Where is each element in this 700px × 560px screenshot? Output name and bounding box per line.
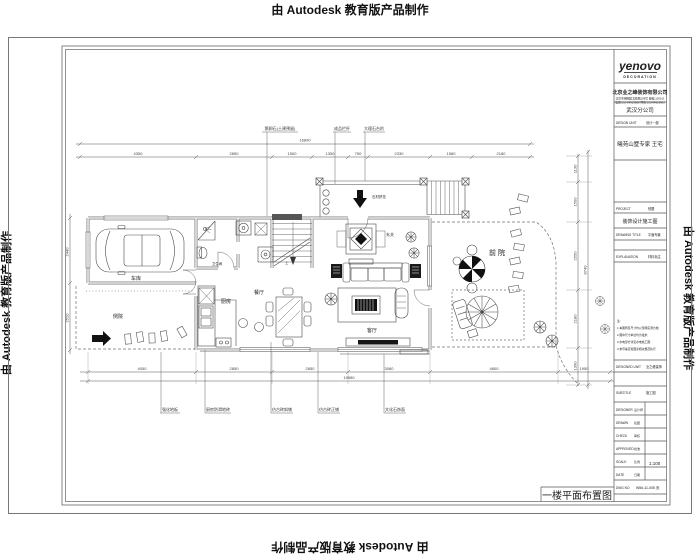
sign-value: 绘图 — [634, 420, 640, 425]
dim-label: 2180 — [497, 151, 507, 156]
dim-label: 3080 — [385, 366, 395, 371]
chaise — [395, 288, 408, 318]
design-unit-value: 设计一部 — [646, 120, 660, 125]
post-icon — [462, 178, 469, 185]
front-yard: 前院 — [432, 194, 610, 384]
sign-value: 审核 — [634, 433, 640, 438]
subtitle-value: 施工图 — [646, 390, 656, 395]
callout-label: 大理石台阶 — [364, 125, 384, 131]
design-unit-label: DESIGN UNIT — [616, 121, 637, 125]
dwg-no-label: DWG NO — [616, 486, 630, 490]
designed-unit-label: DESIGNED UNIT — [616, 365, 641, 369]
dim-label: 4350 — [134, 151, 144, 156]
title-block: yenovo DECORATION 北京业之峰装饰有限公司 北京市朝阳区北苑路1… — [612, 50, 667, 502]
garage-label: 车库 — [131, 275, 141, 282]
side-yard-label: 侧院 — [113, 313, 123, 320]
drawing-canvas: 由 Autodesk 教育版产品制作 由 Autodesk 教育版产品制作 由 … — [0, 0, 700, 560]
coffee-table — [352, 296, 380, 314]
bathroom: 卫生间 — [197, 221, 273, 266]
walls — [88, 214, 430, 350]
post-icon — [420, 178, 427, 185]
dim-label: 1390 — [573, 361, 578, 371]
floor-plan: 16890 4350 2850 1500 1350 750 2330 1580 … — [65, 125, 615, 413]
stepping-stone — [510, 229, 521, 237]
dwg-no-value: W5#-11-005 页 — [636, 486, 660, 490]
callout-label: 厨房防滑地砖 — [206, 406, 230, 412]
logo-text: yenovo — [618, 59, 661, 73]
dim-label: 1350 — [326, 151, 336, 156]
sign-table: DESIGNER 设计师 DRAWN 绘图 CHECK 审核 APPROVED … — [616, 407, 661, 477]
subtitle-label: SUBTITLE — [616, 391, 631, 395]
stepping-stone — [177, 326, 187, 338]
stepping-stone — [509, 257, 520, 265]
parasol-table-icon — [459, 256, 485, 282]
car-icon — [96, 226, 184, 275]
dim-label: 1130 — [573, 164, 578, 173]
dining: 餐厅 — [254, 288, 311, 346]
sign-label: APPROVED — [616, 447, 634, 451]
company-phone: 电话:010-84929988 传真:010-84929900 — [615, 101, 665, 105]
sign-label: DATE — [616, 473, 624, 477]
living-label: 客厅 — [367, 327, 377, 334]
plant-icon — [409, 248, 419, 258]
watermark-left: 由 Autodesk 教育版产品制作 — [0, 231, 13, 375]
interior-stairs: 上 — [272, 222, 312, 266]
dim-label: 8740 — [583, 265, 588, 275]
stepping-stone — [514, 243, 525, 251]
dim-label: 2520 — [65, 313, 70, 323]
entry-arrow-icon — [353, 190, 367, 208]
explanation-value: 材料标注 — [648, 254, 662, 259]
foyer-label: 玄关 — [386, 231, 394, 237]
post-icon — [462, 211, 469, 218]
stepping-stone — [136, 332, 144, 343]
stepping-stone — [160, 331, 167, 342]
path-arrow-icon — [92, 331, 111, 346]
note-line: 1.本图所有尺寸均以现场实测为准; — [617, 326, 659, 330]
tv-cabinet — [346, 338, 410, 346]
dim-label: 4800 — [490, 366, 500, 371]
note-line: 3.水电部分详见水电施工图; — [617, 340, 651, 344]
dim-label: 2850 — [230, 151, 240, 156]
front-yard-label: 前院 — [489, 248, 507, 257]
dining-label: 餐厅 — [254, 289, 264, 296]
plant-icon — [601, 325, 610, 334]
floor-medallion — [337, 224, 385, 264]
watermark-top: 由 Autodesk 教育版产品制作 — [271, 2, 428, 17]
dim-label: 1500 — [288, 151, 298, 156]
project-type: 装饰设计施工图 — [622, 218, 657, 225]
dim-label: 2550 — [573, 251, 578, 261]
stair-arrow-icon — [290, 257, 296, 265]
watermark-bottom: 由 Autodesk 教育版产品制作 — [271, 540, 428, 555]
entry-note: 石材拼花 — [372, 194, 386, 199]
stepping-stone — [149, 333, 155, 343]
watermarks: 由 Autodesk 教育版产品制作 由 Autodesk 教育版产品制作 由 … — [0, 2, 696, 555]
dim-label: 4050 — [138, 366, 148, 371]
dim-label: 750 — [355, 151, 362, 156]
bath-label: 卫生间 — [212, 261, 223, 266]
plan-title: 一楼平面布置图 — [542, 489, 612, 502]
notes: 注: 1.本图所有尺寸均以现场实测为准; 2.图中尺寸单位均为毫米; 3.水电部… — [617, 319, 659, 351]
stepping-stone — [125, 334, 132, 344]
dim-label: 2330 — [395, 151, 405, 156]
dim-label: 2440 — [65, 247, 70, 257]
note-line: 4.未尽事宜按国家相关规范执行. — [617, 347, 657, 351]
kitchen-label: 厨房 — [221, 298, 231, 305]
tv-icon — [358, 340, 398, 345]
stepping-stone — [509, 207, 520, 215]
cad-sheet: 由 Autodesk 教育版产品制作 由 Autodesk 教育版产品制作 由 … — [0, 0, 700, 560]
sign-value: 设计师 — [634, 407, 643, 412]
stepping-stone — [509, 285, 520, 293]
living-room: 玄关 — [325, 224, 421, 346]
dim-label: 2850 — [230, 366, 240, 371]
branch-name: 武汉分公司 — [626, 106, 654, 114]
dim-label: 1580 — [447, 151, 457, 156]
scale-value: 1:100 — [649, 461, 661, 466]
sign-label: DRAWN — [616, 421, 629, 425]
callout-label: 文化石饰面 — [385, 406, 405, 412]
callout-label: 仿古砖斜铺 — [272, 406, 292, 412]
post-icon — [316, 178, 323, 185]
patio-umbrella-icon — [466, 296, 498, 328]
sign-label: DESIGNER — [616, 408, 633, 412]
note-line: 注: — [617, 319, 621, 323]
sign-value: 日期 — [634, 472, 640, 477]
stepping-stone — [513, 271, 524, 278]
dim-label: 1500 — [573, 197, 578, 207]
sign-label: SCALE — [616, 460, 626, 464]
dim-label: 19580 — [343, 375, 355, 380]
explanation-label: EXPLANATION — [616, 255, 639, 259]
designed-unit-value: 业之峰装饰 — [646, 364, 662, 369]
plant-icon — [534, 321, 546, 333]
sign-value: 比例 — [634, 459, 640, 464]
plant-icon — [546, 335, 558, 347]
sign-label: CHECK — [616, 434, 628, 438]
callout-label: 鹅卵石(土建预留) — [265, 125, 296, 131]
dim-label: 2850 — [306, 366, 316, 371]
garage: 车库 — [96, 226, 184, 283]
entry-porch: 石材拼花 — [316, 178, 469, 218]
project-value: 别墅 — [648, 206, 655, 211]
project-name: 曦苑山墅专家 王宅 — [617, 140, 663, 148]
logo-subtext: DECORATION — [623, 75, 656, 79]
callout-label: 强化地板 — [162, 406, 178, 412]
dim-label: 2180 — [573, 314, 578, 324]
sign-value: 批准 — [634, 446, 640, 451]
dim-label: 16890 — [299, 138, 311, 143]
note-line: 2.图中尺寸单位均为毫米; — [617, 333, 648, 337]
drawing-title-value: 平面布置 — [648, 232, 661, 237]
side-yard: 侧院 — [76, 286, 202, 349]
plan-title-cell: 一楼平面布置图 — [541, 487, 614, 502]
watermark-right: 由 Autodesk 教育版产品制作 — [682, 226, 696, 370]
project-label: PROJECT — [616, 207, 631, 211]
stair-label: 上 — [285, 260, 289, 265]
stepping-stone — [517, 194, 528, 202]
plant-icon — [325, 293, 337, 305]
callout-label: 成品栏杆 — [334, 125, 350, 131]
callout-label: 仿古砖正铺 — [319, 406, 339, 412]
company-name: 北京业之峰装饰有限公司 — [612, 89, 667, 96]
company-logo: yenovo DECORATION — [618, 59, 661, 79]
sofa-set — [331, 263, 421, 282]
plant-icon — [406, 232, 416, 242]
drawing-title-label: DRAWING TITLE — [616, 233, 641, 237]
plant-icon — [596, 297, 605, 306]
